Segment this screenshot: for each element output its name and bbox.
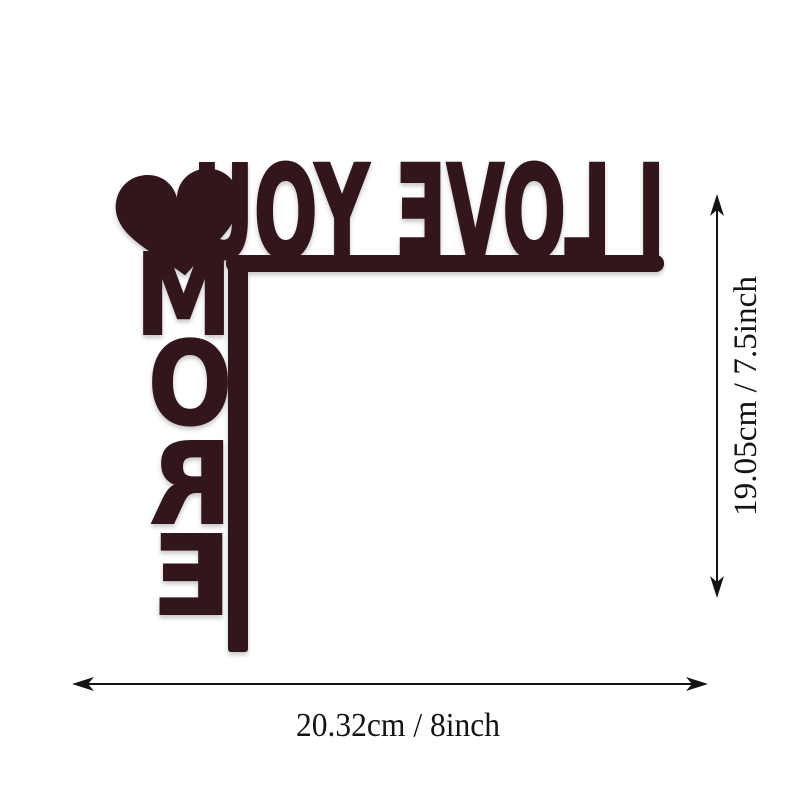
width-dimension-label: 20.32cm / 8inch (296, 707, 500, 744)
height-dimension (710, 194, 724, 598)
cutout-sign: I LOVE YOU M O R E (113, 139, 665, 652)
sign-horizontal-text: I LOVE YOU (193, 139, 665, 288)
height-dimension-label: 19.05cm / 7.5inch (728, 276, 764, 516)
diagram-canvas: I LOVE YOU M O R E 19.05cm / 7.5inch 20.… (0, 0, 800, 800)
sign-vertical-letter-e: E (152, 512, 232, 640)
width-dimension (72, 677, 708, 691)
product-dimension-diagram: I LOVE YOU M O R E 19.05cm / 7.5inch 20.… (0, 0, 800, 800)
